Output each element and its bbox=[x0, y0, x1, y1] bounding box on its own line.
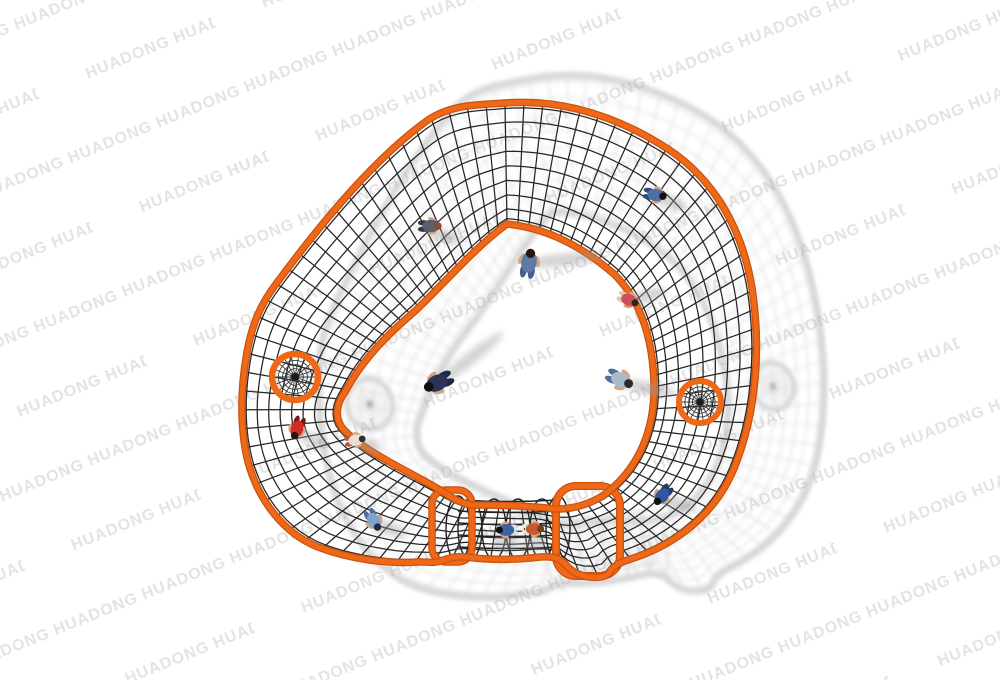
product-render-canvas: HUADONG HUADONG HUADONG HUADONG bbox=[0, 0, 1000, 680]
climbing-net-structure-render: HUADONG HUADONG HUADONG HUADONG bbox=[0, 0, 1000, 680]
spider-web-right bbox=[679, 381, 721, 423]
